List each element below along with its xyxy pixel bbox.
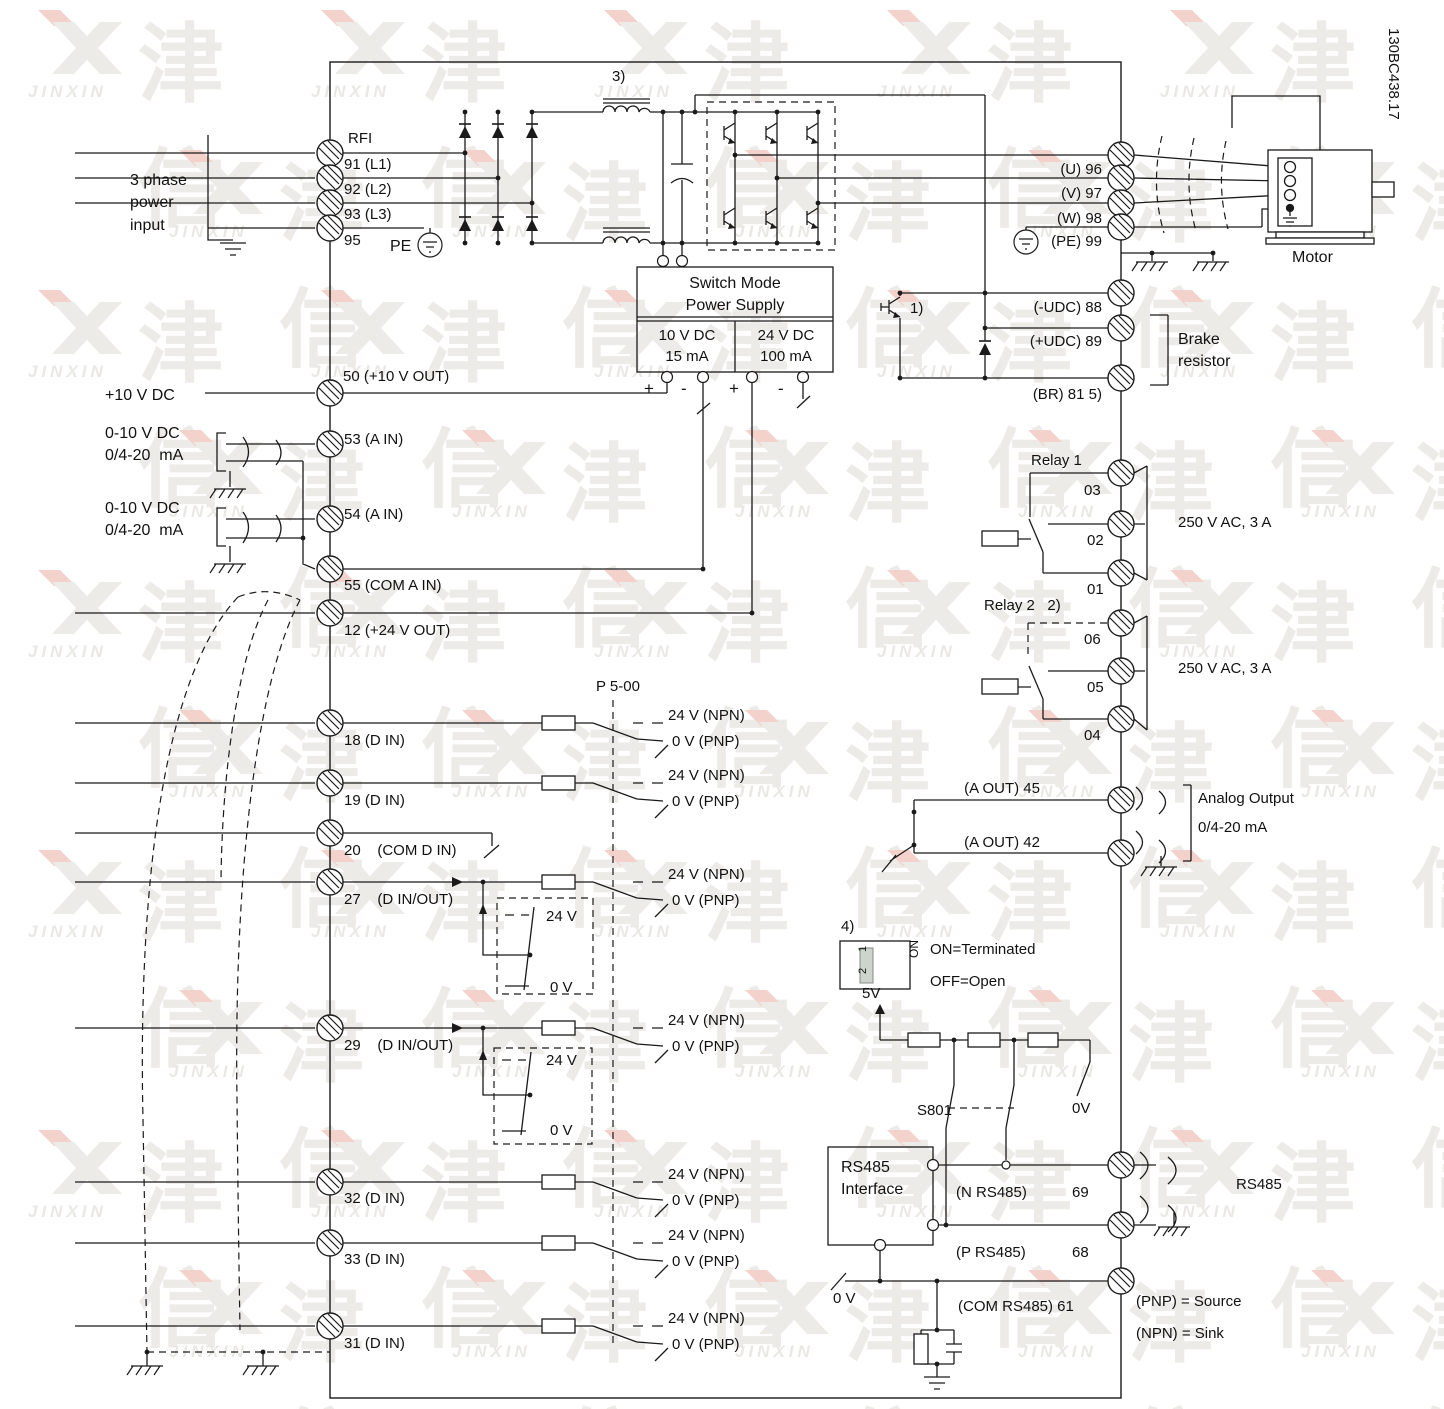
r01-label: 01 <box>1087 579 1104 600</box>
smps-title-label: Switch Mode Power Supply <box>640 273 830 318</box>
sm2-label: - <box>778 377 784 401</box>
b29a-label: 24 V <box>546 1050 577 1071</box>
t81-label: (BR) 81 5) <box>942 384 1102 405</box>
v5-label: 5V <box>862 983 880 1004</box>
note4-label: 4) <box>841 916 854 937</box>
p500-label: P 5-00 <box>596 676 640 697</box>
t96-label: (U) 96 <box>942 159 1102 180</box>
b27b-label: 0 V <box>550 977 573 998</box>
pnp-18-label: 0 V (PNP) <box>672 731 740 752</box>
t88-label: (-UDC) 88 <box>942 297 1102 318</box>
relay1-label: Relay 1 <box>1031 450 1082 471</box>
rat2-label: 250 V AC, 3 A <box>1178 658 1271 679</box>
figid-label: 130BC438.17 <box>1383 28 1404 120</box>
a42-label: (A OUT) 42 <box>880 832 1040 853</box>
dip-onv-label: ON <box>906 940 923 958</box>
phase-input-label: 3 phase power input <box>130 170 187 237</box>
n69-label: 69 <box>1072 1182 1089 1203</box>
t50-label: 50 (+10 V OUT) <box>343 366 449 387</box>
dip1-label: 1 <box>856 946 871 952</box>
range53-label: 0-10 V DC 0/4-20 mA <box>105 423 183 468</box>
v0r-label: 0V <box>1072 1098 1090 1119</box>
t27-label: 27 (D IN/OUT) <box>344 889 453 910</box>
note3-label: 3) <box>612 66 625 87</box>
aout-t-label: Analog Output <box>1198 788 1294 809</box>
relay2-label: Relay 2 2) <box>984 595 1061 616</box>
t19-label: 19 (D IN) <box>344 790 405 811</box>
npn-18-label: 24 V (NPN) <box>668 705 745 726</box>
smps24-label: 24 V DC 100 mA <box>740 325 832 367</box>
npn-31-label: 24 V (NPN) <box>668 1308 745 1329</box>
npn-32-label: 24 V (NPN) <box>668 1164 745 1185</box>
t29-label: 29 (D IN/OUT) <box>344 1035 453 1056</box>
com485-label: (COM RS485) 61 <box>958 1296 1074 1317</box>
wiring-diagram-page: JINXIN津信JINXIN津信JINXIN津信JINXIN津信JINXIN津信… <box>0 0 1444 1409</box>
a45-label: (A OUT) 45 <box>880 778 1040 799</box>
note1-label: 1) <box>910 298 923 319</box>
n485-label: (N RS485) <box>956 1182 1027 1203</box>
r04-label: 04 <box>1084 725 1101 746</box>
t33-label: 33 (D IN) <box>344 1249 405 1270</box>
rfi-label: RFI <box>348 128 372 149</box>
pnp-19-label: 0 V (PNP) <box>672 791 740 812</box>
voff-label: OFF=Open <box>930 971 1005 992</box>
t54-label: 54 (A IN) <box>344 504 403 525</box>
t97-label: (V) 97 <box>942 183 1102 204</box>
aout-r-label: 0/4-20 mA <box>1198 817 1267 838</box>
npn-sink-label: (NPN) = Sink <box>1136 1323 1224 1344</box>
pnp-31-label: 0 V (PNP) <box>672 1334 740 1355</box>
t55-label: 55 (COM A IN) <box>344 575 442 596</box>
pe-left-label: PE <box>390 236 411 258</box>
t98-label: (W) 98 <box>942 208 1102 229</box>
rsif-label: RS485 Interface <box>841 1157 903 1202</box>
t89-label: (+UDC) 89 <box>942 331 1102 352</box>
p485-label: (P RS485) <box>956 1242 1026 1263</box>
sp1-label: + <box>644 377 654 401</box>
r03-label: 03 <box>1084 480 1101 501</box>
t53-label: 53 (A IN) <box>344 429 403 450</box>
t92-label: 92 (L2) <box>344 179 392 200</box>
t12-label: 12 (+24 V OUT) <box>344 620 450 641</box>
v0b-label: 0 V <box>833 1288 856 1309</box>
t31-label: 31 (D IN) <box>344 1333 405 1354</box>
dip2-label: 2 <box>856 968 871 974</box>
von-label: ON=Terminated <box>930 939 1035 960</box>
sm1-label: - <box>681 377 687 401</box>
t18-label: 18 (D IN) <box>344 730 405 751</box>
b27a-label: 24 V <box>546 906 577 927</box>
t93-label: 93 (L3) <box>344 204 392 225</box>
npn-33-label: 24 V (NPN) <box>668 1225 745 1246</box>
rat1-label: 250 V AC, 3 A <box>1178 512 1271 533</box>
sp2-label: + <box>729 377 739 401</box>
t32-label: 32 (D IN) <box>344 1188 405 1209</box>
t99-label: (PE) 99 <box>942 231 1102 252</box>
r02-label: 02 <box>1087 530 1104 551</box>
r05-label: 05 <box>1087 677 1104 698</box>
pnp-33-label: 0 V (PNP) <box>672 1251 740 1272</box>
r06-label: 06 <box>1084 629 1101 650</box>
range54-label: 0-10 V DC 0/4-20 mA <box>105 498 183 543</box>
p68-label: 68 <box>1072 1242 1089 1263</box>
pnp-27-label: 0 V (PNP) <box>672 890 740 911</box>
t20-label: 20 (COM D IN) <box>344 840 457 861</box>
labels-layer: RFI91 (L1)92 (L2)93 (L3)95PE3 phase powe… <box>0 0 1444 1409</box>
npn-29-label: 24 V (NPN) <box>668 1010 745 1031</box>
s801-label: S801 <box>900 1100 952 1121</box>
motor-lbl-label: Motor <box>1292 247 1333 269</box>
smps10-label: 10 V DC 15 mA <box>642 325 732 367</box>
b29b-label: 0 V <box>550 1120 573 1141</box>
npn-19-label: 24 V (NPN) <box>668 765 745 786</box>
brake-label: Brake resistor <box>1178 329 1230 374</box>
t91-label: 91 (L1) <box>344 154 392 175</box>
rs485c-label: RS485 <box>1236 1174 1282 1195</box>
npn-27-label: 24 V (NPN) <box>668 864 745 885</box>
t95-label: 95 <box>344 230 361 251</box>
plus10-label: +10 V DC <box>105 385 175 407</box>
pnp-29-label: 0 V (PNP) <box>672 1036 740 1057</box>
pnp-32-label: 0 V (PNP) <box>672 1190 740 1211</box>
pnp-src-label: (PNP) = Source <box>1136 1291 1241 1312</box>
